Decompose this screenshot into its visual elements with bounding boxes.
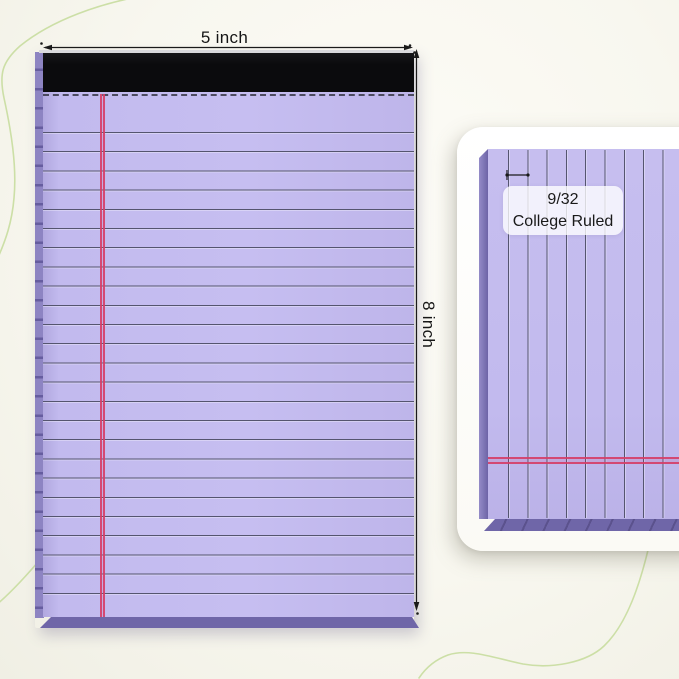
binding-strip [43,53,414,92]
ruling-spacing-arrow-icon [501,167,541,183]
ruling-label-spacing: 9/32 [547,189,578,210]
ruling-label-type: College Ruled [513,211,614,232]
height-dimension-label: 8 inch [418,301,438,348]
pad-bottom-edge [40,617,419,628]
detail-margin-line [488,457,679,464]
perforation-line [43,94,414,96]
ruled-lines [43,132,414,595]
ruling-label: 9/32 College Ruled [503,186,623,235]
margin-line [100,94,105,617]
width-dimension-label: 5 inch [35,28,414,48]
product-image: 5 inch 8 inch 9/32 College Ruled [0,0,679,679]
detail-pad-spine [479,149,488,519]
detail-pad-bottom-edge [484,519,679,531]
detail-card: 9/32 College Ruled [457,127,679,551]
front-pad [35,50,414,628]
